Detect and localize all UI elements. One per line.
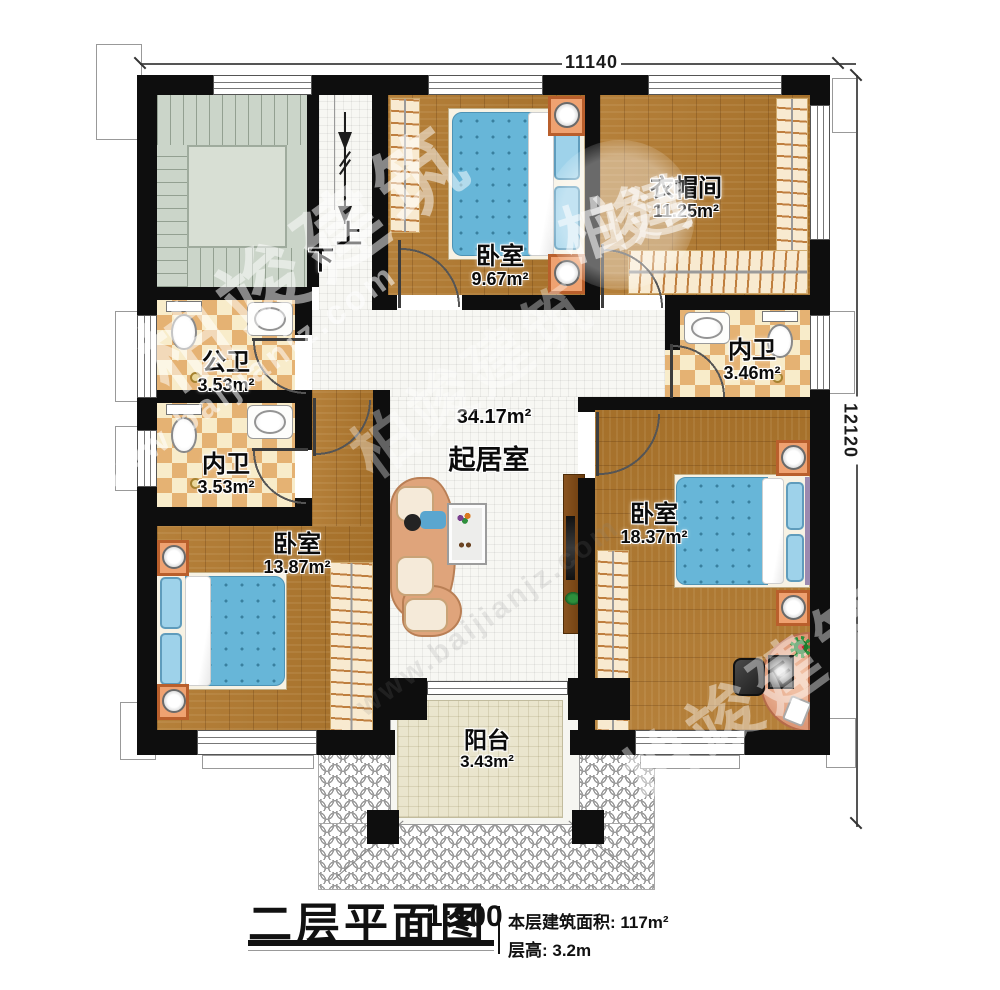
bed-pillow [160, 633, 182, 685]
room-label-living-area: 34.17m² [434, 406, 554, 428]
title-underline-thin [248, 950, 494, 951]
bed-pillow [554, 186, 580, 250]
wardrobe-rack [330, 562, 373, 732]
sink-basin [691, 317, 723, 339]
room-name: 阳台 [427, 728, 547, 753]
room-label-inner-bath-left: 内卫 3.53m² [166, 452, 286, 498]
wall [137, 75, 157, 315]
title-divider [498, 906, 500, 954]
balcony-pillar [572, 810, 604, 844]
tv-screen [566, 516, 575, 580]
room-label-bedroom-top: 卧室 9.67m² [440, 244, 560, 290]
wall [317, 730, 395, 755]
window-sill [115, 311, 139, 402]
wall [745, 730, 830, 755]
room-label-bedroom-right: 卧室 18.37m² [594, 502, 714, 548]
window [213, 75, 312, 95]
window-sill [640, 755, 740, 769]
person-figure [404, 514, 421, 531]
window [137, 315, 157, 398]
room-label-bedroom-left: 卧室 13.87m² [237, 532, 357, 578]
person-figure-body [420, 511, 446, 529]
room-label-inner-bath-right: 内卫 3.46m² [692, 338, 812, 384]
bed-pillow [786, 482, 804, 530]
window [428, 75, 543, 95]
room-area: 3.46m² [692, 364, 812, 384]
bed-blanket [185, 576, 211, 686]
stair-treads [157, 145, 187, 287]
wall [137, 487, 157, 755]
top-dimension-label: 11140 [562, 52, 621, 73]
room-area: 34.17m² [434, 406, 554, 428]
wall [810, 75, 830, 105]
window-sill [832, 78, 858, 133]
wall [385, 678, 427, 720]
room-name: 公卫 [166, 350, 286, 376]
bed-blanket [762, 478, 784, 584]
stair-down-label: 下 [308, 246, 334, 275]
stair-up-label: 上 [336, 220, 362, 249]
wall [312, 75, 428, 95]
room-name: 内卫 [166, 452, 286, 478]
lamp-icon [781, 595, 806, 620]
stair-treads [157, 95, 307, 145]
wall [578, 478, 595, 733]
sink-basin [254, 307, 286, 331]
room-area: 9.67m² [440, 270, 560, 290]
window [635, 730, 745, 755]
room-name: 衣帽间 [626, 176, 746, 202]
wall [570, 730, 635, 755]
computer-monitor [768, 655, 794, 689]
wall [295, 395, 312, 450]
lamp-icon [554, 102, 580, 128]
room-name: 卧室 [237, 532, 357, 558]
wall [137, 287, 312, 300]
room-label-balcony: 阳台 3.43m² [427, 728, 547, 772]
wall [373, 390, 390, 733]
window-sill [828, 311, 855, 394]
window-sill [202, 755, 314, 769]
table-items [458, 542, 472, 548]
window [810, 315, 830, 390]
window [197, 730, 317, 755]
room-area: 18.37m² [594, 528, 714, 548]
room-label-living-name: 起居室 [429, 446, 549, 476]
door-arc [604, 248, 664, 308]
window-sill [115, 426, 139, 491]
flower-vase [455, 511, 473, 525]
room-name: 卧室 [440, 244, 560, 270]
toilet [171, 417, 197, 453]
closet-rack [390, 98, 420, 233]
floor-height-label: 层高: 3.2m [508, 936, 591, 961]
lamp-icon [781, 445, 806, 470]
building-area-label: 本层建筑面积: 117m² [508, 908, 669, 933]
room-area: 13.87m² [237, 558, 357, 578]
lamp-icon [162, 689, 186, 713]
top-dimension-line [140, 63, 856, 65]
toilet [166, 404, 202, 415]
bed-pillow [160, 577, 182, 629]
title-underline-thick [248, 940, 494, 946]
balcony-pillar [367, 810, 399, 844]
wall [578, 397, 595, 412]
corner-step [826, 718, 856, 768]
wall [462, 295, 600, 310]
door-arc [316, 400, 372, 456]
stair-landing [187, 145, 287, 248]
room-name: 卧室 [594, 502, 714, 528]
sofa-cushion [396, 556, 434, 596]
lamp-icon [162, 545, 186, 569]
wall [137, 730, 197, 755]
plant-icon [790, 636, 812, 658]
wall [372, 75, 388, 295]
door-arc [599, 414, 661, 476]
closet-rack [776, 98, 808, 254]
room-label-cloakroom: 衣帽间 11.25m² [626, 176, 746, 222]
toilet [762, 311, 798, 322]
wall [295, 287, 312, 335]
sofa-cushion [404, 598, 448, 632]
room-name: 内卫 [692, 338, 812, 364]
toilet [171, 314, 197, 350]
scale-label: 1:100 [426, 900, 503, 934]
wall [810, 240, 830, 315]
stair-treads [187, 248, 307, 287]
window [648, 75, 782, 95]
balcony-sliding-door [427, 681, 568, 695]
room-area: 3.43m² [427, 753, 547, 772]
room-area: 3.53m² [166, 376, 286, 396]
office-chair [733, 658, 765, 696]
floor-plan: 11140 12120 [0, 0, 1000, 990]
toilet [166, 301, 202, 312]
right-dimension-label: 12120 [840, 397, 861, 465]
room-label-public-bath: 公卫 3.53m² [166, 350, 286, 396]
wall [810, 390, 830, 755]
sink-basin [254, 410, 286, 434]
wall [665, 295, 810, 310]
corridor-rail [334, 95, 335, 210]
room-area: 3.53m² [166, 478, 286, 498]
wall [137, 507, 312, 526]
wall [578, 397, 810, 410]
window [810, 105, 830, 240]
window [137, 430, 157, 487]
wall [372, 295, 397, 310]
room-name: 起居室 [429, 446, 549, 476]
wall [585, 75, 600, 310]
bed-pillow [786, 534, 804, 582]
stair-arrow-icon [338, 132, 352, 150]
room-area: 11.25m² [626, 202, 746, 222]
living-room-floor [312, 310, 665, 397]
